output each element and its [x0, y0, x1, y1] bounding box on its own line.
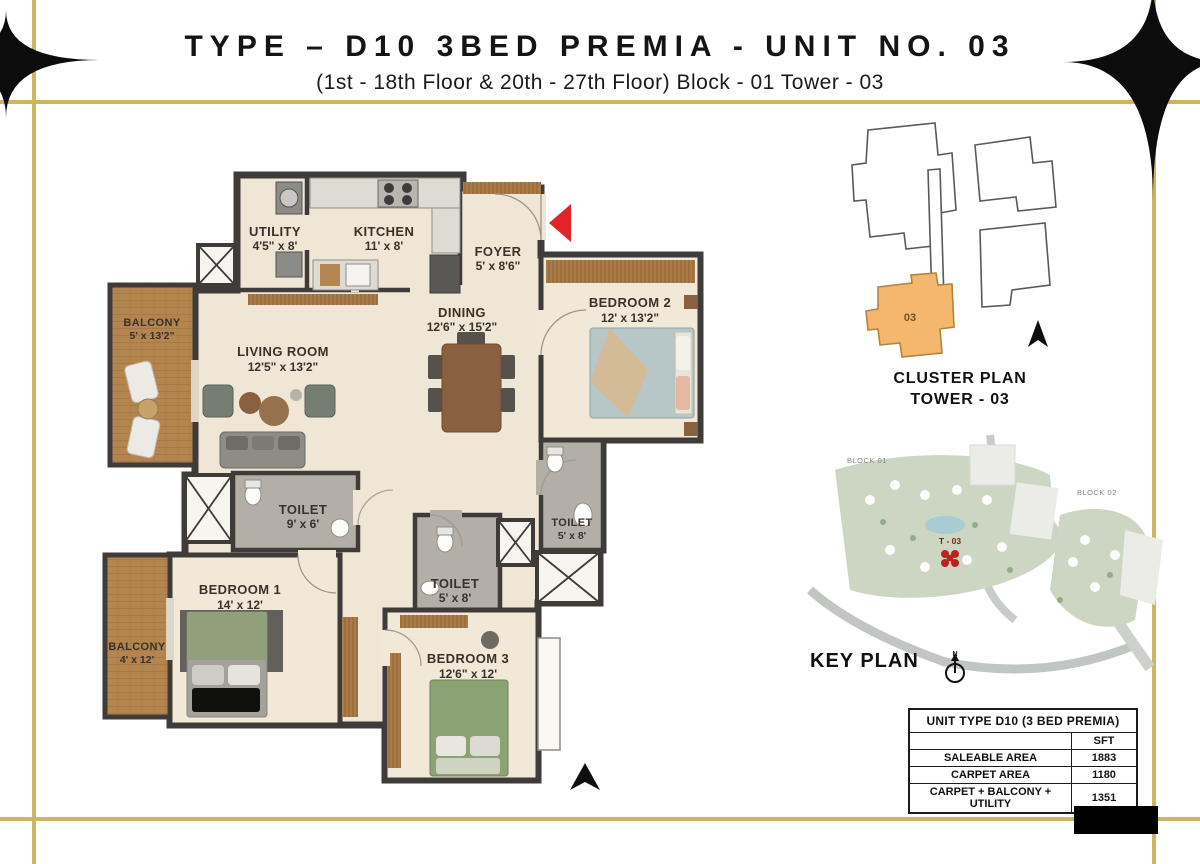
room-dim-toilet-right: 5' x 8': [558, 530, 586, 542]
room-dim-dining: 12'6" x 15'2": [427, 320, 497, 334]
room-dim-balcony2: 4' x 12': [120, 654, 154, 666]
room-label-kitchen: KITCHEN: [354, 224, 415, 239]
keyplan-plot-top: [970, 445, 1015, 485]
area-table: UNIT TYPE D10 (3 BED PREMIA) SFT SALEABL…: [908, 708, 1138, 814]
hall-wardrobe: [342, 617, 358, 717]
plan-north-arrow-icon: [570, 763, 600, 790]
bedroom3-desk: [400, 615, 468, 628]
area-table-empty-cell: [909, 733, 1072, 750]
keyplan-block1-label: BLOCK 01: [847, 456, 887, 465]
shaft-mid-left: [185, 475, 232, 542]
page-title: TYPE – D10 3BED PREMIA - UNIT NO. 03: [0, 30, 1200, 64]
shaft-mid-right: [498, 520, 533, 565]
room-dim-bedroom2: 12' x 13'2": [601, 311, 659, 325]
bottom-right-black-block: [1074, 806, 1158, 834]
table-row: CARPET AREA 1180: [909, 767, 1137, 784]
sofa-icon: [220, 432, 305, 468]
stove-icon: [378, 180, 418, 207]
keyplan-plot-east: [1120, 530, 1163, 605]
room-label-toilet-right: TOILET: [551, 517, 592, 529]
area-row-value: 1883: [1072, 750, 1138, 767]
floor-plan: UTILITY 4'5" x 8' KITCHEN 11' x 8' FOYER…: [100, 160, 720, 820]
utility-counter: [276, 252, 302, 277]
shaft-right: [537, 552, 600, 603]
room-dim-utility: 4'5" x 8': [253, 239, 298, 253]
room-dim-kitchen: 11' x 8': [365, 239, 404, 253]
keyplan-plot-center: [1010, 482, 1059, 539]
room-dim-living: 12'5" x 13'2": [248, 360, 318, 374]
bedroom2-wardrobe: [546, 260, 695, 283]
cluster-tower-03-label: 03: [904, 312, 916, 324]
page-subtitle: (1st - 18th Floor & 20th - 27th Floor) B…: [0, 71, 1200, 95]
kitchen-counter-side: [432, 208, 460, 253]
sparkle-star-top-left: [0, 0, 115, 130]
room-label-toilet-master: TOILET: [279, 502, 327, 517]
bedroom3-ledge: [538, 638, 560, 750]
room-dim-toilet-mid: 5' x 8': [439, 591, 472, 605]
armchair-right-icon: [305, 385, 335, 417]
room-label-dining: DINING: [438, 305, 486, 320]
area-row-label: CARPET + BALCONY + UTILITY: [909, 784, 1072, 814]
area-row-label: SALEABLE AREA: [909, 750, 1072, 767]
area-row-label: CARPET AREA: [909, 767, 1072, 784]
shaft-top-left: [198, 245, 235, 285]
room-label-utility: UTILITY: [249, 224, 301, 239]
room-label-bedroom3: BEDROOM 3: [427, 651, 509, 666]
armchair-left-icon: [203, 385, 233, 417]
cluster-plan-title-line1: CLUSTER PLAN: [845, 368, 1075, 389]
room-label-living: LIVING ROOM: [237, 344, 329, 359]
key-plan-map: T - 03 BLOCK 01 BLOCK 02: [795, 430, 1165, 680]
room-dim-foyer: 5' x 8'6": [476, 259, 521, 273]
area-table-header: UNIT TYPE D10 (3 BED PREMIA): [909, 709, 1137, 733]
area-row-value: 1180: [1072, 767, 1138, 784]
cluster-tower-c: [980, 223, 1050, 307]
room-label-bedroom1: BEDROOM 1: [199, 582, 281, 597]
room-label-toilet-mid: TOILET: [431, 576, 479, 591]
room-dim-toilet-master: 9' x 6': [287, 517, 320, 531]
living-tv-console: [248, 294, 378, 305]
room-label-foyer: FOYER: [475, 244, 522, 259]
cluster-plan: 03: [840, 115, 1070, 365]
frame-line-top: [0, 100, 1200, 104]
room-label-bedroom2: BEDROOM 2: [589, 295, 671, 310]
cluster-north-arrow-icon: [1028, 320, 1048, 347]
fridge-icon: [430, 255, 460, 293]
room-dim-balcony1: 5' x 13'2": [129, 330, 174, 342]
bedroom3-wardrobe: [387, 653, 401, 768]
cluster-plan-title: CLUSTER PLAN TOWER - 03: [845, 368, 1075, 410]
coffee-table-icon: [239, 392, 261, 414]
room-label-balcony2: BALCONY: [108, 641, 165, 653]
entry-arrow-icon: [549, 204, 571, 242]
key-plan-title: KEY PLAN: [810, 650, 950, 673]
room-dim-bedroom1: 14' x 12': [217, 598, 263, 612]
keyplan-tower-label: T - 03: [939, 536, 961, 546]
balcony-bedroom1: [105, 555, 170, 717]
room-dim-bedroom3: 12'6" x 12': [439, 667, 497, 681]
keyplan-block2-label: BLOCK 02: [1077, 488, 1117, 497]
keyplan-pond: [925, 516, 965, 534]
side-table-icon: [290, 389, 302, 401]
coffee-table2-icon: [259, 396, 289, 426]
keyplan-compass-icon: N: [940, 648, 972, 688]
cluster-tower-b: [975, 137, 1056, 211]
floorplan-brochure-page: TYPE – D10 3BED PREMIA - UNIT NO. 03 (1s…: [0, 0, 1200, 864]
cluster-plan-title-line2: TOWER - 03: [845, 389, 1075, 410]
table-row: SALEABLE AREA 1883: [909, 750, 1137, 767]
room-label-balcony1: BALCONY: [123, 317, 180, 329]
kitchen-sink-icon: [313, 260, 378, 290]
foyer-wardrobe: [463, 182, 541, 194]
washing-machine-icon: [276, 182, 302, 214]
area-table-col-header: SFT: [1072, 733, 1138, 750]
